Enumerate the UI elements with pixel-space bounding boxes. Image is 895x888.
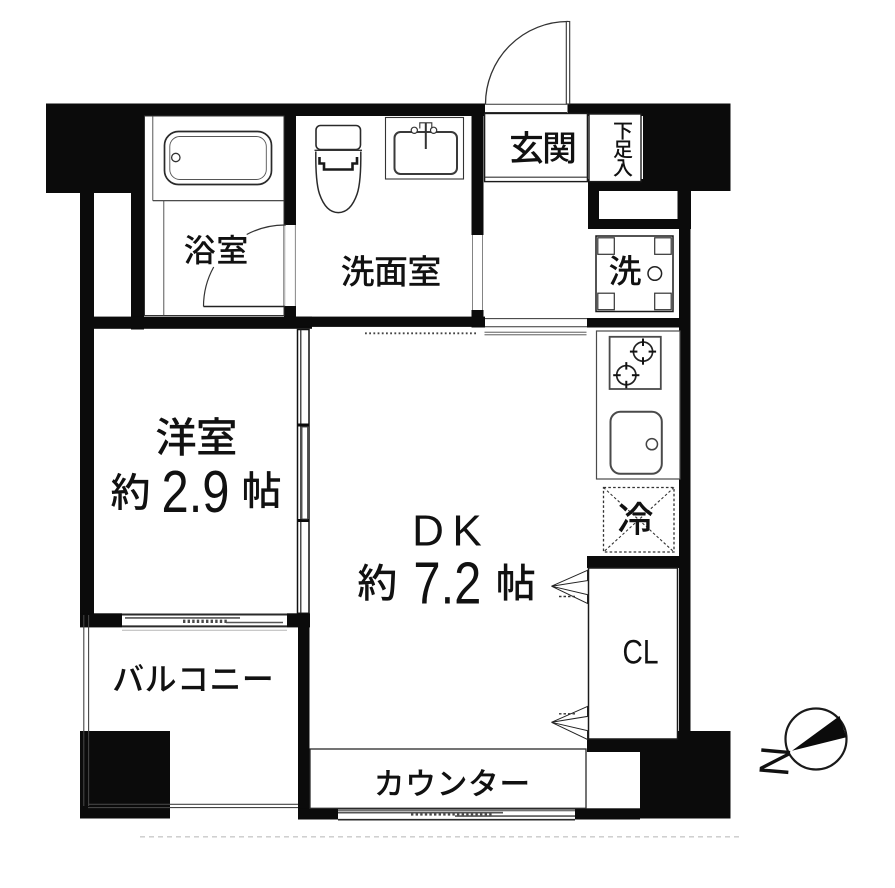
svg-text:2.9: 2.9 [162, 459, 230, 525]
svg-text:DK: DK [412, 507, 490, 556]
svg-text:CL: CL [623, 634, 659, 672]
svg-text:7.2: 7.2 [413, 551, 481, 617]
svg-text:N: N [750, 744, 799, 778]
